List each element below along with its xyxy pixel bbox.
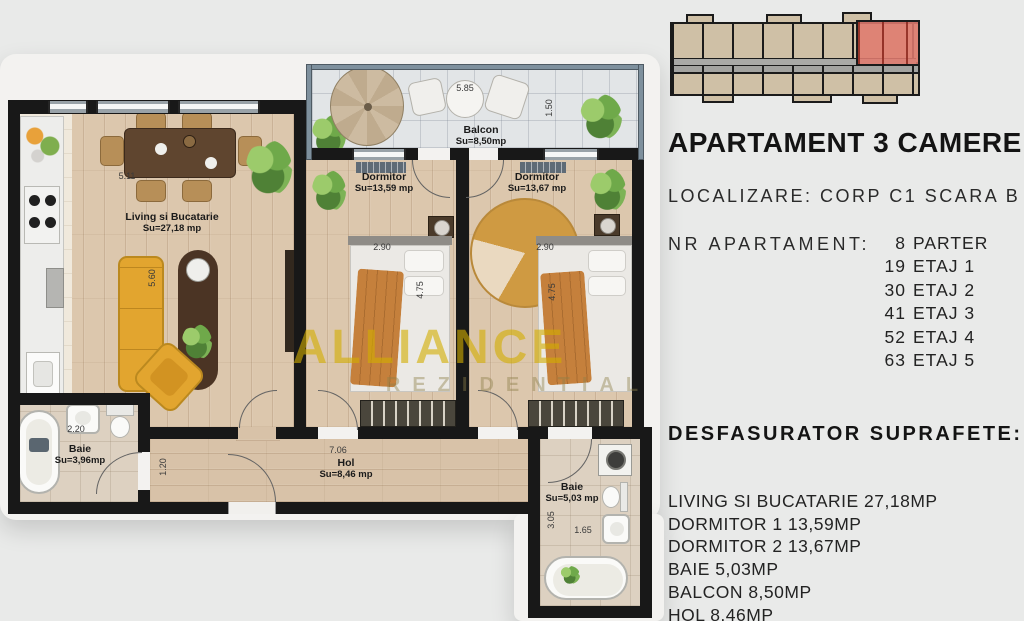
headboard <box>348 236 452 245</box>
plate <box>155 143 167 155</box>
toilet-tank <box>106 404 134 416</box>
room-label-balcon: Balcon Su=8,50mp <box>456 124 506 148</box>
wall <box>276 427 318 439</box>
wall <box>148 427 238 439</box>
wall <box>8 502 228 514</box>
burner <box>29 195 40 206</box>
dining-chair <box>182 180 212 202</box>
pillow <box>404 250 444 272</box>
armchair-cushion <box>148 356 190 398</box>
umbrella <box>330 66 404 146</box>
toilet-tank <box>620 482 628 512</box>
dim-sofa-length: 5.60 <box>147 269 157 287</box>
bathtub <box>544 556 628 600</box>
apartment-floor-item: 30ETAJ 2 <box>882 279 1018 302</box>
umbrella-pole <box>364 103 372 111</box>
surface-item: DORMITOR 1 13,59MP <box>668 513 1024 536</box>
dim-dormitor1-width: 2.90 <box>373 242 391 252</box>
thumbnail-highlighted-unit <box>856 20 920 66</box>
room-label-baie2: Baie Su=5,03 mp <box>545 481 598 505</box>
surface-item: BAIE 5,03MP <box>668 558 1024 581</box>
bathtub-basin <box>26 419 52 485</box>
room-label-baie1: Baie Su=3,96mp <box>55 443 105 467</box>
nightstand <box>594 214 620 236</box>
surfaces-list: LIVING SI BUCATARIE 27,18MP DORMITOR 1 1… <box>668 490 1024 621</box>
plant <box>182 324 212 360</box>
window <box>48 101 88 113</box>
wall <box>518 427 548 439</box>
wall <box>8 393 150 405</box>
dim-baie2-width: 1.65 <box>574 525 592 535</box>
dim-hol-depth: 1.20 <box>158 458 168 476</box>
window <box>543 149 599 160</box>
bathroom-sink <box>602 514 630 544</box>
wall <box>358 427 478 439</box>
wall <box>528 439 540 618</box>
bowl <box>183 135 196 148</box>
dim-living-width: 5.11 <box>119 171 136 181</box>
window <box>178 101 260 113</box>
towel <box>29 438 49 452</box>
plant <box>580 94 622 140</box>
apartment-floor-list: 8PARTER 19ETAJ 1 30ETAJ 2 41ETAJ 3 52ETA… <box>882 232 1018 372</box>
sink-basin <box>75 411 91 425</box>
nightstand <box>428 216 454 238</box>
toilet <box>602 482 628 512</box>
plant <box>312 170 346 212</box>
wall <box>592 427 652 439</box>
balcony-railing <box>638 64 644 160</box>
wall <box>276 502 532 514</box>
dim-hol-width: 7.06 <box>329 445 347 455</box>
kitchen-appliance <box>46 268 64 308</box>
balcony-railing <box>306 64 312 160</box>
surfaces-title: DESFASURATOR SUPRAFETE: <box>668 423 1023 446</box>
room-label-dormitor2: Dormitor Su=13,67 mp <box>508 171 566 195</box>
stove <box>24 186 60 244</box>
surface-item: HOL 8,46MP <box>668 604 1024 621</box>
dim-balcon-width: 5.85 <box>456 83 474 93</box>
sink-basin <box>610 522 624 536</box>
localization-line: LOCALIZARE: CORP C1 SCARA B <box>668 186 1020 207</box>
dining-chair <box>136 180 166 202</box>
window <box>96 101 170 113</box>
apartment-floor-item: 52ETAJ 4 <box>882 326 1018 349</box>
sink-basin <box>33 361 53 387</box>
burner <box>29 217 40 228</box>
building-plan-thumbnail <box>666 6 928 110</box>
dim-baie2-depth: 3.05 <box>546 511 556 529</box>
wall <box>294 100 306 427</box>
burner <box>45 195 56 206</box>
plate <box>205 157 217 169</box>
apartment-floor-item: 19ETAJ 1 <box>882 255 1018 278</box>
apartment-floor-item: 63ETAJ 5 <box>882 349 1018 372</box>
thumbnail-block <box>792 94 832 103</box>
washing-machine <box>598 444 632 476</box>
surface-item: DORMITOR 2 13,67MP <box>668 535 1024 558</box>
table-lamp <box>186 258 210 282</box>
dining-chair <box>100 136 124 166</box>
page-title: APARTAMENT 3 CAMERE <box>668 127 1022 159</box>
fruit-bowls <box>24 124 60 164</box>
wardrobe <box>528 400 624 427</box>
surface-item: LIVING SI BUCATARIE 27,18MP <box>668 490 1024 513</box>
watermark-line1: ALLIANCE <box>293 320 568 375</box>
watermark-line2: REZIDENTIAL <box>386 374 650 397</box>
kitchen-sink <box>26 352 60 396</box>
dining-table <box>124 128 236 178</box>
burner <box>45 217 56 228</box>
dim-dormitor2-length: 4.75 <box>547 283 557 301</box>
wall <box>640 439 652 618</box>
toilet-bowl <box>602 486 620 508</box>
apartment-floor-item: 8PARTER <box>882 232 1018 255</box>
bedside-lamp <box>434 220 450 236</box>
thumbnail-block <box>862 94 898 104</box>
wardrobe <box>360 400 456 427</box>
dim-dormitor2-width: 2.90 <box>536 242 554 252</box>
dim-balcon-depth: 1.50 <box>544 99 554 117</box>
balcony-railing <box>306 64 644 70</box>
dim-baie1-width: 2.20 <box>67 424 85 434</box>
dim-dormitor1-length: 4.75 <box>415 281 425 299</box>
apartment-floor-item: 41ETAJ 3 <box>882 302 1018 325</box>
toilet <box>106 404 134 440</box>
plant <box>246 140 292 196</box>
wall <box>528 606 652 618</box>
info-panel: APARTAMENT 3 CAMERE LOCALIZARE: CORP C1 … <box>660 0 1024 621</box>
floorplan-flyer: Living si Bucatarie Su=27,18 mp Dormitor… <box>0 0 1024 621</box>
wall <box>8 100 20 514</box>
balcony-chair <box>407 77 447 117</box>
floor-passage <box>236 427 280 441</box>
bedside-lamp <box>600 218 616 234</box>
bathtub <box>18 410 60 494</box>
surface-item: BALCON 8,50MP <box>668 581 1024 604</box>
plant <box>590 168 626 212</box>
toilet-bowl <box>110 416 130 438</box>
room-label-living: Living si Bucatarie Su=27,18 mp <box>125 211 218 235</box>
window <box>352 149 406 160</box>
plant <box>560 566 580 584</box>
pillow <box>588 276 626 296</box>
room-label-hol: Hol Su=8,46 mp <box>319 457 372 481</box>
pillow <box>588 250 626 272</box>
washer-drum <box>606 450 626 470</box>
nr-apartament-label: NR APARTAMENT: <box>668 234 870 255</box>
room-label-dormitor1: Dormitor Su=13,59 mp <box>355 171 413 195</box>
entry-threshold <box>228 502 276 514</box>
thumbnail-block <box>702 94 734 103</box>
